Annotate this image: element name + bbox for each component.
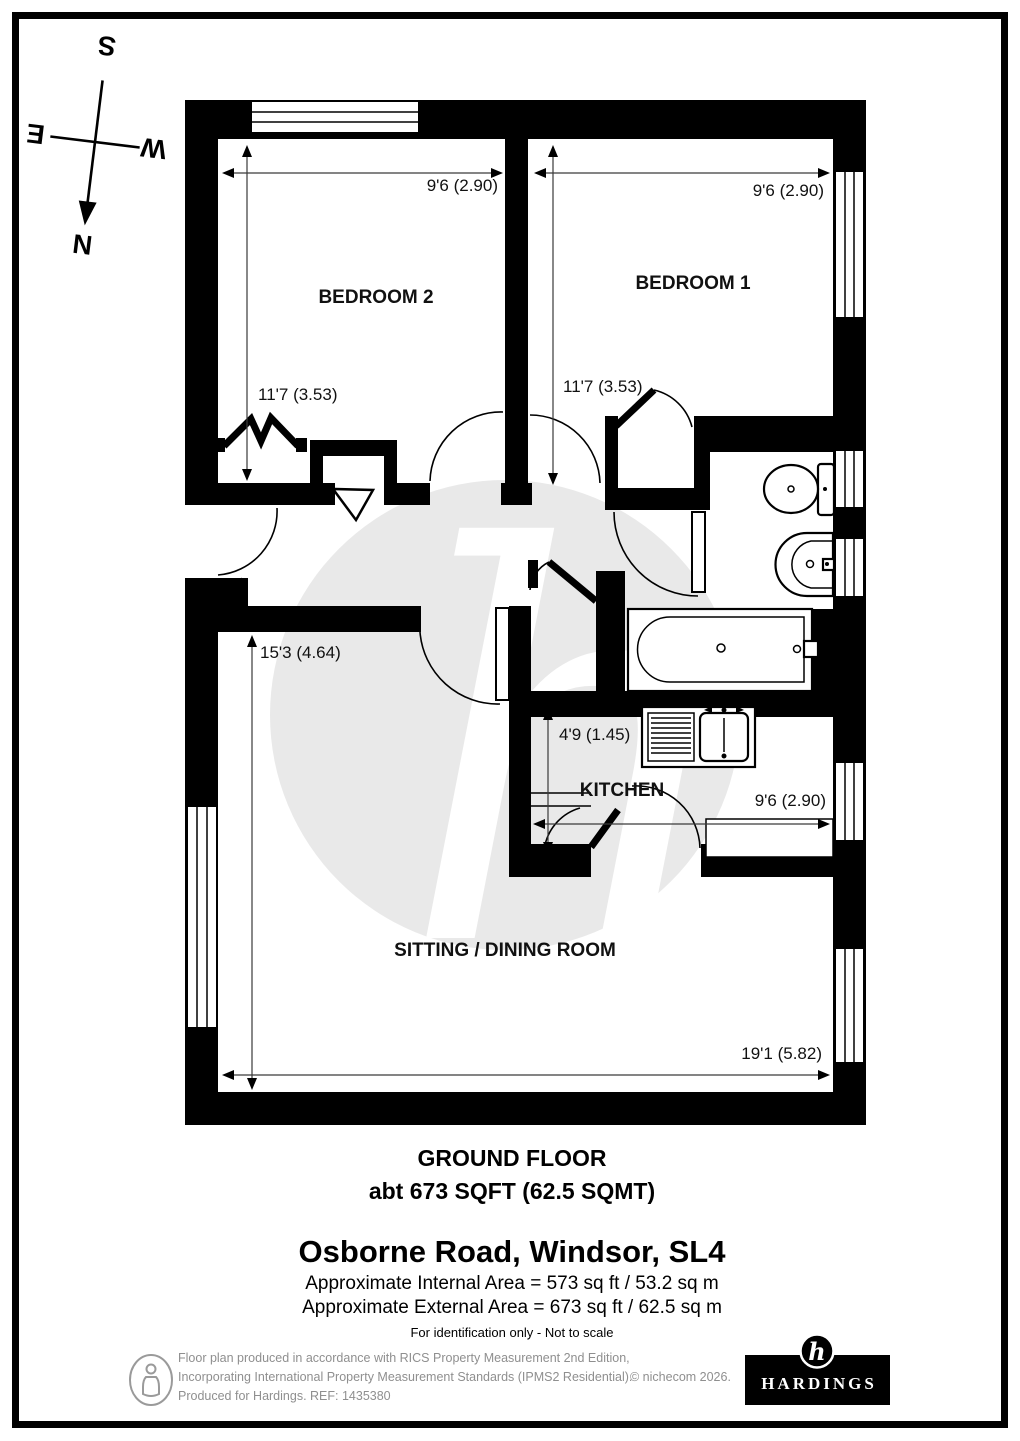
bedroom2-depth-label: 11'7 (3.53) <box>258 385 337 404</box>
compass-label-s: S <box>96 30 118 62</box>
property-title: Osborne Road, Windsor, SL4 <box>299 1234 727 1269</box>
hardings-monogram: h <box>808 1337 825 1366</box>
person-icon <box>130 1355 172 1405</box>
compass-label-n: N <box>71 228 94 260</box>
wall-cupboard-jamb <box>528 560 538 588</box>
bathroom-door-icon <box>692 512 705 592</box>
wall-hall-closet-right <box>384 440 397 488</box>
dim-sitting-depth-icon <box>247 635 257 1090</box>
bedroom1-depth-label: 11'7 (3.53) <box>563 377 642 396</box>
sitting-label: SITTING / DINING ROOM <box>394 940 616 961</box>
window-sitting-left-icon <box>187 806 217 1028</box>
compass-label-e: E <box>25 118 47 150</box>
footer-line1: Floor plan produced in accordance with R… <box>178 1351 630 1365</box>
basin-icon <box>776 533 834 596</box>
hall-closet-door-icon <box>333 489 373 520</box>
kitchen-depth-label: 4'9 (1.45) <box>559 725 630 744</box>
wall-bedroom1-bottom <box>694 416 833 452</box>
kitchen-width-label: 9'6 (2.90) <box>755 791 826 810</box>
entrance-door-arc-icon <box>218 508 277 575</box>
footer-line2: Incorporating International Property Mea… <box>178 1370 632 1384</box>
wall-bottom <box>185 1092 866 1125</box>
window-sitting-right-icon <box>835 948 864 1063</box>
window-bedroom2-top-icon <box>251 101 419 133</box>
window-bathroom-upper-icon <box>835 450 864 508</box>
kitchen-label: KITCHEN <box>580 780 664 801</box>
floor-name: GROUND FLOOR <box>417 1145 606 1171</box>
footer-copyright: © nichecom 2026. <box>630 1370 731 1384</box>
wall-b1-closet-right <box>694 416 710 510</box>
dim-bedroom1-depth-icon <box>548 145 558 485</box>
bedroom2-width-label: 9'6 (2.90) <box>427 176 498 195</box>
wall-kitchen-bottom-right <box>723 857 866 877</box>
bedroom2-label: BEDROOM 2 <box>318 287 433 308</box>
bedroom1-closet-arc-icon <box>654 390 692 427</box>
window-kitchen-icon <box>835 762 864 841</box>
footer-line3: Produced for Hardings. REF: 1435380 <box>178 1389 391 1403</box>
summary-block: GROUND FLOOR abt 673 SQFT (62.5 SQMT) Os… <box>299 1145 727 1340</box>
kitchen-counter-icon <box>706 819 833 857</box>
bifold-closet-doors-icon <box>224 418 298 446</box>
window-bathroom-lower-icon <box>835 538 864 597</box>
bathtub-icon <box>628 609 818 691</box>
hardings-brand-name: HARDINGS <box>761 1374 877 1393</box>
hardings-logo: h HARDINGS <box>745 1335 890 1406</box>
wall-bathroom-left <box>596 571 625 701</box>
wall-bedroom-divider <box>505 139 528 483</box>
window-bedroom1-right-icon <box>835 171 864 318</box>
dim-sitting-width-icon <box>222 1070 830 1080</box>
floorplan-page: h N S E W <box>0 0 1020 1441</box>
identification-note: For identification only - Not to scale <box>410 1325 613 1340</box>
wall-divider-foot <box>501 483 532 505</box>
toilet-icon <box>764 464 834 515</box>
bedroom1-width-label: 9'6 (2.90) <box>753 181 824 200</box>
wall-hall-closet-left <box>310 440 323 488</box>
compass-rose: N S E W <box>12 22 180 267</box>
wall-hall-closet-top <box>310 440 397 456</box>
bedroom1-label: BEDROOM 1 <box>635 273 751 294</box>
compass-north-arrow-icon <box>76 200 97 226</box>
dim-bedroom1-width-icon <box>534 168 830 178</box>
wall-kitchen-left <box>509 606 531 877</box>
floor-area: abt 673 SQFT (62.5 SQMT) <box>369 1178 655 1204</box>
external-area: Approximate External Area = 673 sq ft / … <box>302 1297 722 1318</box>
kitchen-sink-icon <box>642 706 755 767</box>
internal-area: Approximate Internal Area = 573 sq ft / … <box>305 1273 718 1294</box>
sitting-door-icon <box>496 608 509 700</box>
compass-label-w: W <box>139 132 168 165</box>
sitting-width-label: 19'1 (5.82) <box>741 1044 822 1063</box>
floorplan-canvas: h N S E W <box>0 0 1020 1441</box>
wall-sitting-top-left <box>218 606 421 632</box>
footer: Floor plan produced in accordance with R… <box>130 1335 890 1406</box>
sitting-depth-label: 15'3 (4.64) <box>260 643 341 662</box>
